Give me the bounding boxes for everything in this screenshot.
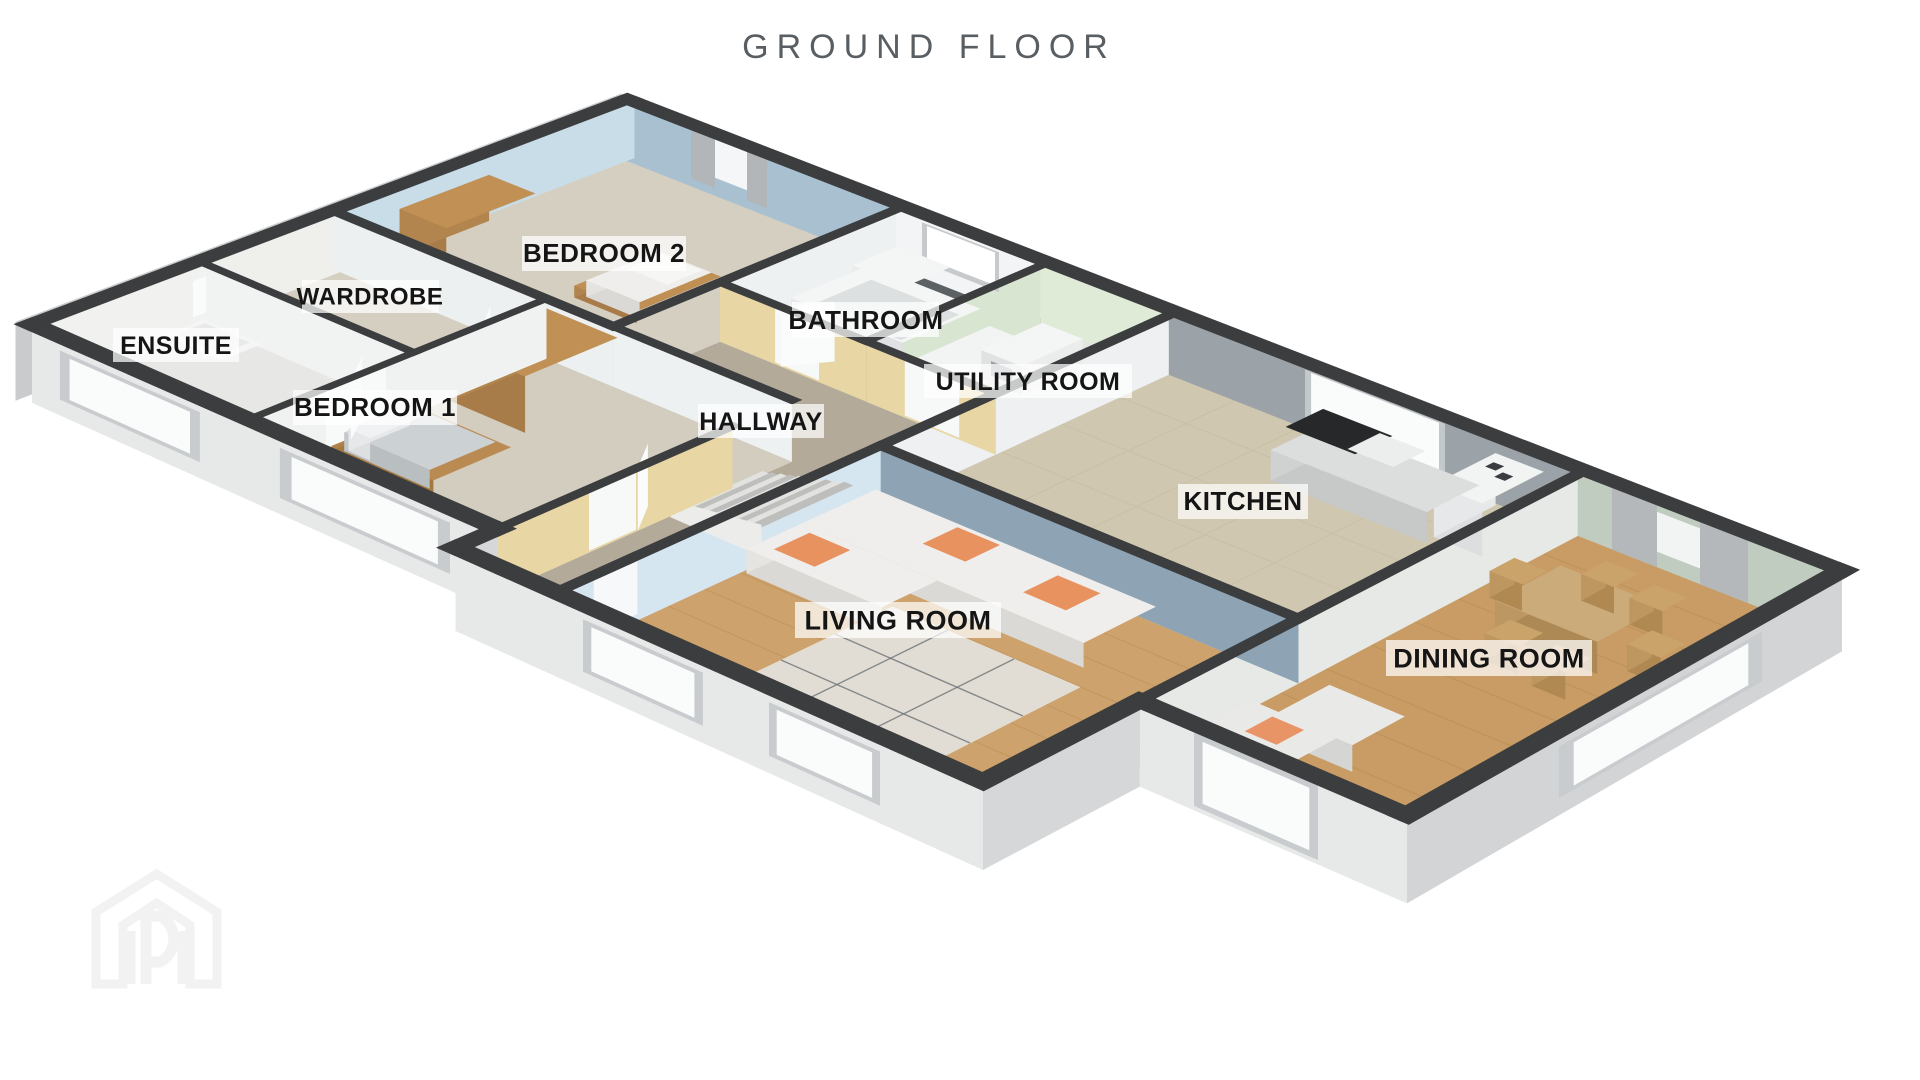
svg-text:ENSUITE: ENSUITE xyxy=(120,332,232,360)
svg-text:LIVING ROOM: LIVING ROOM xyxy=(805,605,992,635)
svg-text:GROUND FLOOR: GROUND FLOOR xyxy=(742,28,1116,66)
svg-text:BEDROOM 1: BEDROOM 1 xyxy=(294,392,456,422)
svg-text:HALLWAY: HALLWAY xyxy=(699,408,822,436)
svg-text:WARDROBE: WARDROBE xyxy=(297,283,444,310)
svg-text:BATHROOM: BATHROOM xyxy=(788,305,943,335)
svg-text:DINING ROOM: DINING ROOM xyxy=(1393,643,1585,673)
svg-text:BEDROOM 2: BEDROOM 2 xyxy=(523,238,685,268)
svg-text:KITCHEN: KITCHEN xyxy=(1183,486,1302,516)
svg-text:UTILITY ROOM: UTILITY ROOM xyxy=(936,368,1121,396)
